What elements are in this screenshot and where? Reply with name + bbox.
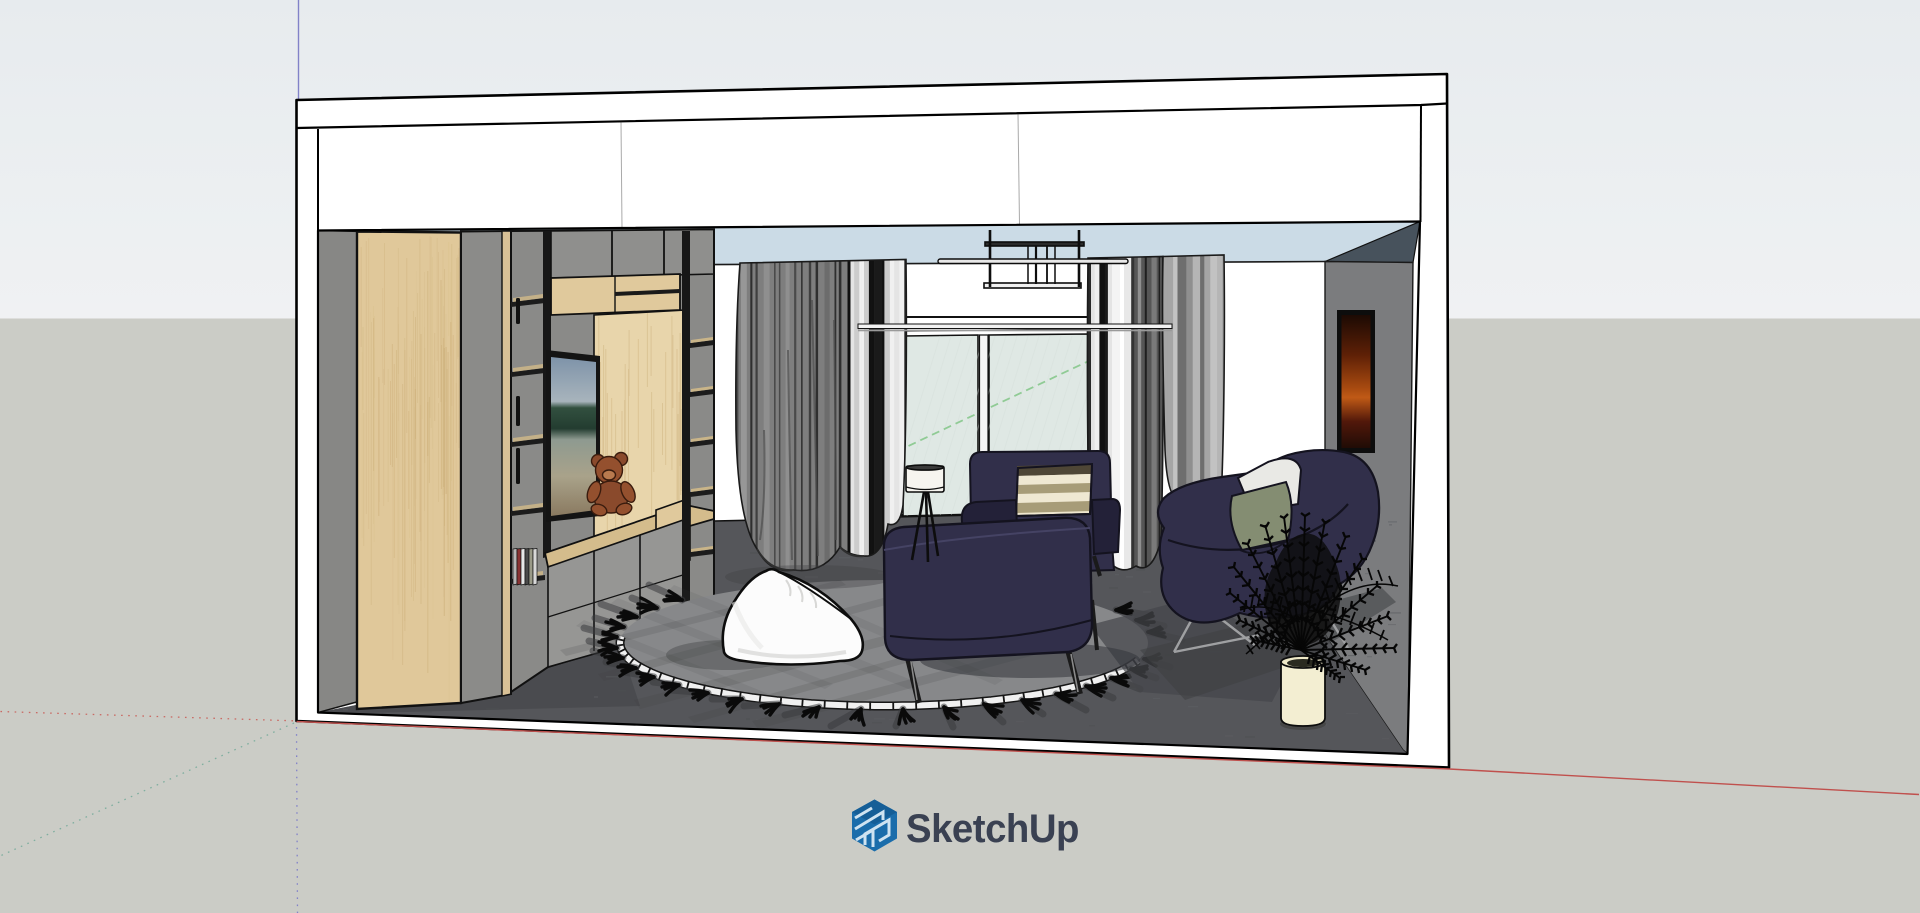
svg-text:SketchUp: SketchUp <box>906 807 1079 851</box>
